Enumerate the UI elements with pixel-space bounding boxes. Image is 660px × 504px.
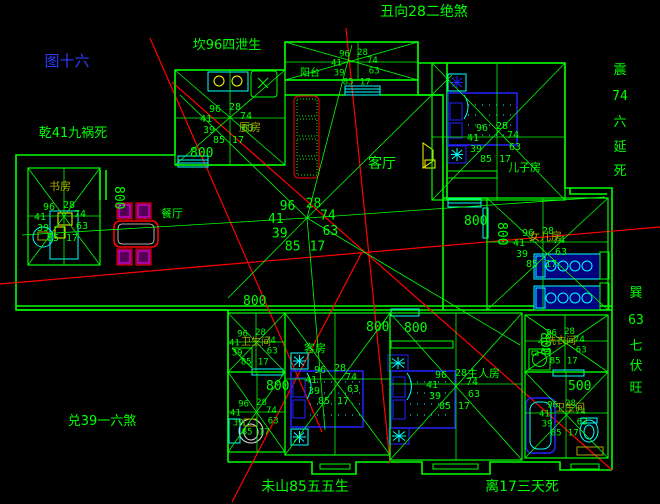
son-bed-pillow [450, 123, 462, 138]
dimension-label: 800 [366, 320, 389, 335]
stove-burner-icon [214, 76, 224, 86]
dimension-label: 800 [243, 294, 266, 309]
svg-text:63: 63 [628, 313, 644, 328]
mountain-label: 未山85五五生 [261, 479, 349, 495]
northwest-label: 乾41九祸死 [39, 126, 108, 141]
room-label-study: 书房 [49, 180, 71, 193]
inner-wall-study-window [100, 170, 106, 200]
south-label: 离17三天死 [485, 478, 559, 495]
star-number: 17 [360, 78, 371, 88]
svg-text:74: 74 [612, 89, 628, 104]
star-number: 85 [343, 78, 354, 88]
svg-text:旺: 旺 [629, 381, 642, 396]
son-nightstand [448, 74, 466, 163]
star-number: 85 [47, 233, 59, 244]
room-dining: 餐厅 [161, 206, 183, 220]
star-number: 41 [331, 59, 342, 69]
star-number: 85 [285, 240, 301, 255]
star-number: 17 [259, 428, 270, 438]
star-number: 85 [526, 259, 538, 270]
star-number: 41 [426, 380, 438, 391]
bay-window [320, 464, 599, 469]
star-number: 85 [439, 401, 451, 412]
floor-plan-canvas: 9628417439638517厨房9628417439638517阳台9628… [0, 0, 660, 504]
dimension-label: 800 [266, 379, 289, 394]
star-number: 85 [318, 396, 330, 407]
sofa-cushions [297, 99, 317, 175]
star-ray [307, 75, 452, 218]
star-number: 63 [468, 389, 480, 400]
star-number: 85 [241, 358, 252, 368]
master-bed-pillow [393, 400, 405, 419]
dining-table [114, 221, 158, 247]
star-number: 63 [347, 384, 359, 395]
star-number: 17 [337, 396, 349, 407]
star-number: 63 [268, 417, 279, 427]
star-number: 17 [545, 259, 557, 270]
dimension-label: 800 [404, 321, 427, 336]
svg-text:死: 死 [613, 164, 626, 179]
star-number: 85 [480, 154, 492, 165]
svg-text:巽: 巽 [629, 286, 642, 301]
star-number: 85 [550, 357, 561, 367]
room-son: 9628417439638517儿子房 [432, 63, 565, 200]
figure-label: 图十六 [44, 52, 89, 70]
star-number: 74 [367, 56, 378, 66]
north-label: 坎96四泄生 [193, 38, 262, 53]
room-bath1: 9628417439638517卫生间 [228, 313, 285, 372]
star-number: 41 [268, 212, 284, 227]
room-study: 9628417439638517书房 [28, 168, 100, 265]
dimension-label: 800 [537, 332, 552, 355]
dimension-label: 800 [111, 186, 126, 209]
star-number: 17 [310, 240, 326, 255]
room-bath3: 9628417439638517卫生间 [525, 372, 608, 458]
master-bed-pillow [393, 377, 405, 397]
svg-text:六: 六 [613, 115, 626, 130]
star-number: 63 [555, 247, 567, 258]
star-number: 63 [509, 142, 521, 153]
star-number: 17 [66, 233, 78, 244]
sofa [294, 96, 319, 178]
star-number: 85 [551, 429, 562, 439]
star-number: 17 [567, 357, 578, 367]
star-number: 17 [232, 135, 244, 146]
dimension-label: 500 [568, 379, 591, 394]
stove-burner-icon [232, 76, 242, 86]
room-label-bath1: 卫生间 [241, 335, 271, 348]
star-number: 74 [345, 372, 357, 383]
daughter-bed [534, 286, 600, 310]
guest-bed-pillow [293, 400, 305, 418]
facing-label: 丑向28二绝煞 [380, 4, 468, 20]
svg-text:震: 震 [613, 63, 626, 78]
west-label: 兑39一六煞 [68, 414, 137, 429]
room-label-guest: 客房 [304, 341, 326, 355]
bath3-window [553, 370, 584, 376]
southeast-label-column: 巽 63 七 伏 旺 [628, 286, 644, 396]
room-label-kitchen: 厨房 [239, 121, 261, 134]
outer-wall-bottom [228, 462, 612, 474]
star-number: 41 [229, 339, 240, 349]
room-label-son: 儿子房 [508, 161, 541, 174]
east-label-column: 震 74 六 延 死 [612, 63, 628, 179]
star-number: 41 [230, 409, 241, 419]
star-number: 63 [323, 224, 339, 239]
svg-text:七: 七 [629, 339, 642, 354]
son-bed-headboard [464, 95, 468, 119]
star-number: 63 [576, 346, 587, 356]
svg-text:伏: 伏 [629, 359, 642, 374]
dining-chairs [117, 203, 151, 265]
son-bed-pillow [450, 103, 462, 120]
star-number: 41 [34, 212, 46, 223]
star-number: 41 [513, 238, 525, 249]
star-number: 41 [467, 133, 479, 144]
room-label-master: 主人房 [467, 367, 500, 380]
dimension-label: 800 [494, 222, 509, 245]
star-number: 74 [266, 406, 277, 416]
star-number: 63 [267, 347, 278, 357]
inner-wall-middle-bottom [16, 306, 612, 310]
star-number: 74 [74, 209, 86, 220]
room-label-daughter: 女儿房 [529, 229, 562, 243]
floor-plan-svg: 9628417439638517厨房9628417439638517阳台9628… [0, 0, 660, 504]
star-number: 74 [507, 130, 519, 141]
star-number: 28 [306, 197, 322, 212]
star-number: 17 [258, 358, 269, 368]
star-number: 85 [242, 428, 253, 438]
room-label-dining: 餐厅 [161, 206, 183, 220]
star-number: 41 [305, 375, 317, 386]
star-number: 74 [320, 208, 336, 223]
room-label-living: 客厅 [368, 155, 396, 172]
star-charts-layer: 9628417439638517厨房9628417439638517阳台9628… [22, 42, 608, 460]
dimension-label: 800 [190, 146, 213, 161]
room-label-balcony: 阳台 [300, 66, 320, 79]
dining-table-top [118, 224, 154, 244]
star-number: 17 [458, 401, 470, 412]
dimension-label: 800 [464, 214, 487, 229]
master-dresser [391, 341, 453, 348]
inner-wall-right-step [570, 188, 607, 194]
room-label-bath3: 卫生间 [555, 401, 585, 414]
inner-wall-hallway [418, 63, 487, 310]
star-number: 41 [539, 410, 550, 420]
star-number: 63 [369, 67, 380, 77]
star-number: 63 [76, 221, 88, 232]
star-number: 63 [577, 418, 588, 428]
master-bed-headboard [407, 373, 412, 400]
svg-text:延: 延 [613, 140, 626, 155]
star-number: 17 [568, 429, 579, 439]
